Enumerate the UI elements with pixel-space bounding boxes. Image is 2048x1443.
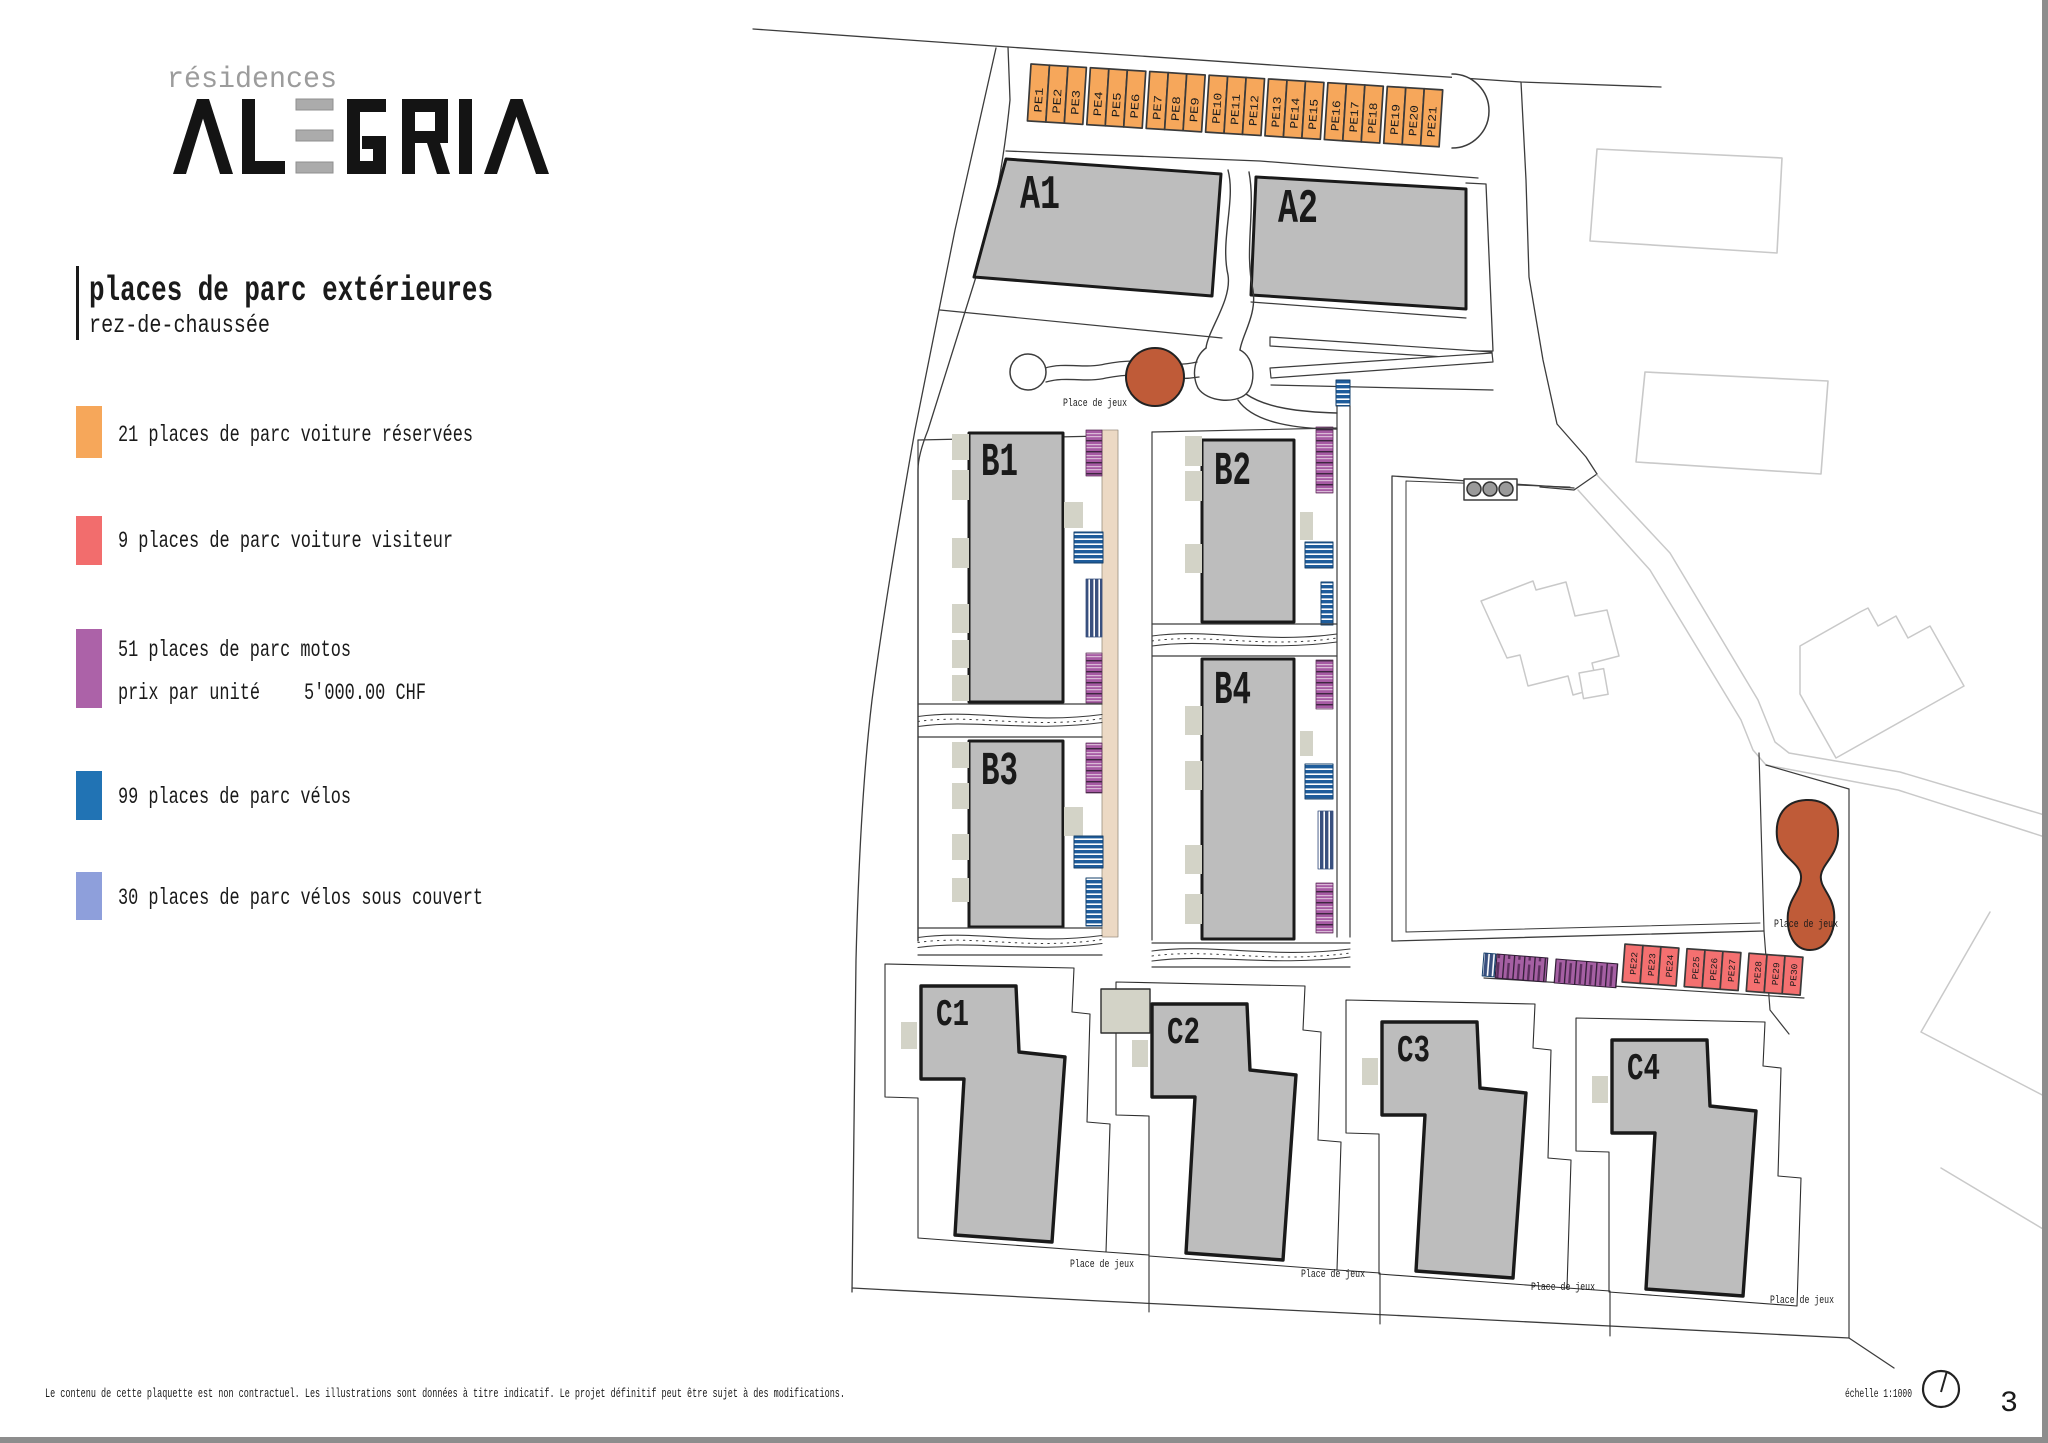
svg-text:PE1: PE1: [1032, 87, 1047, 113]
svg-text:PE10: PE10: [1211, 92, 1226, 124]
svg-text:Place de jeux: Place de jeux: [1070, 1259, 1134, 1271]
svg-text:5'000.00 CHF: 5'000.00 CHF: [304, 680, 426, 706]
svg-text:PE22: PE22: [1629, 952, 1641, 976]
svg-text:B4: B4: [1214, 665, 1251, 718]
svg-text:Place de jeux: Place de jeux: [1770, 1295, 1834, 1307]
svg-text:B1: B1: [981, 437, 1018, 490]
svg-text:99 places de parc vélos: 99 places de parc vélos: [118, 784, 351, 810]
svg-text:prix par unité: prix par unité: [118, 680, 260, 706]
svg-text:PE5: PE5: [1110, 92, 1125, 118]
svg-text:C3: C3: [1397, 1030, 1430, 1073]
svg-text:PE7: PE7: [1151, 95, 1166, 121]
svg-text:PE12: PE12: [1248, 95, 1263, 127]
svg-text:PE14: PE14: [1288, 97, 1303, 129]
svg-text:PE28: PE28: [1753, 961, 1765, 985]
svg-text:PE24: PE24: [1665, 954, 1677, 978]
svg-text:C1: C1: [936, 994, 969, 1037]
svg-text:Place de jeux: Place de jeux: [1301, 1269, 1365, 1281]
svg-text:PE2: PE2: [1051, 88, 1066, 114]
svg-text:PE21: PE21: [1426, 106, 1441, 138]
svg-text:B2: B2: [1214, 446, 1251, 499]
svg-text:A1: A1: [1020, 169, 1060, 223]
svg-text:PE23: PE23: [1647, 953, 1659, 977]
svg-text:3: 3: [2000, 1387, 2018, 1421]
svg-text:PE20: PE20: [1407, 105, 1422, 137]
svg-text:PE15: PE15: [1307, 98, 1322, 130]
svg-text:PE18: PE18: [1366, 102, 1381, 134]
svg-text:places de parc extérieures: places de parc extérieures: [89, 271, 493, 311]
svg-text:PE25: PE25: [1691, 956, 1703, 980]
svg-text:Place de jeux: Place de jeux: [1531, 1282, 1595, 1294]
svg-text:PE26: PE26: [1709, 957, 1721, 981]
svg-text:échelle 1:1000: échelle 1:1000: [1845, 1387, 1912, 1401]
svg-text:PE13: PE13: [1270, 96, 1285, 128]
svg-text:PE17: PE17: [1348, 101, 1363, 133]
svg-text:9 places de parc voiture visit: 9 places de parc voiture visiteur: [118, 528, 453, 554]
svg-text:A2: A2: [1278, 183, 1318, 237]
svg-text:PE11: PE11: [1229, 94, 1244, 126]
svg-text:21 places de parc voiture rése: 21 places de parc voiture réservées: [118, 422, 473, 448]
svg-text:PE8: PE8: [1170, 96, 1185, 122]
svg-text:Place de jeux: Place de jeux: [1063, 398, 1127, 410]
svg-text:C2: C2: [1167, 1012, 1200, 1055]
svg-text:51 places de parc motos: 51 places de parc motos: [118, 637, 351, 663]
svg-text:30 places de parc vélos sous c: 30 places de parc vélos sous couvert: [118, 885, 483, 911]
svg-text:PE19: PE19: [1389, 104, 1404, 136]
svg-text:PE16: PE16: [1329, 100, 1344, 132]
svg-text:Place de jeux: Place de jeux: [1774, 919, 1838, 931]
svg-text:résidences: résidences: [167, 63, 337, 97]
svg-text:rez-de-chaussée: rez-de-chaussée: [89, 311, 270, 340]
svg-text:PE9: PE9: [1188, 97, 1203, 123]
svg-text:PE4: PE4: [1092, 91, 1107, 117]
svg-text:PE29: PE29: [1771, 962, 1783, 986]
svg-text:PE27: PE27: [1727, 959, 1739, 983]
svg-text:C4: C4: [1627, 1048, 1660, 1091]
svg-text:PE6: PE6: [1129, 93, 1144, 119]
svg-text:PE30: PE30: [1789, 963, 1801, 987]
svg-text:B3: B3: [981, 746, 1018, 799]
svg-text:Le contenu de cette plaquette: Le contenu de cette plaquette est non co…: [45, 1386, 845, 1401]
svg-text:PE3: PE3: [1069, 89, 1084, 115]
